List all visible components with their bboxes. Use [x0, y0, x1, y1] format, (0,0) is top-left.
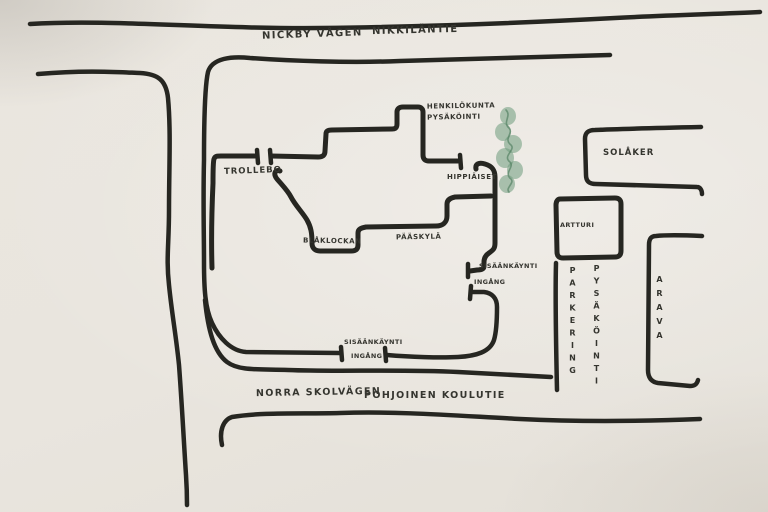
solaker-label: SOLÅKER — [603, 148, 654, 158]
trollebo-label: TROLLEBO — [224, 165, 282, 177]
hippiaiset-label: HIPPIÄISET — [447, 173, 497, 181]
parkering-label: PARKERING — [568, 266, 577, 379]
tree-icon — [495, 107, 523, 193]
staff-parking-line2: PYSÄKÖINTI — [427, 111, 496, 123]
hand-drawn-campus-map: NICKBY VÅGEN NIKKILÄNTIE NORRA SKOLVÄGEN… — [0, 0, 768, 512]
bottom-road-finnish-label: POHJOINEN KOULUTIE — [364, 390, 506, 401]
bottom-entrance-right-tick — [385, 348, 386, 361]
pysakointi-label: PYSÄKÖINTI — [592, 264, 601, 389]
blaklockan-label: BLÅKLOCKAN — [303, 236, 362, 245]
bottom-road-swedish-label: NORRA SKOLVÄGEN — [256, 386, 381, 399]
arava-label: ARAVA — [655, 275, 664, 345]
bottom-entrance-label-fi: SISÄÄNKÄYNTI — [344, 338, 403, 346]
solaker-outline — [585, 127, 702, 194]
boundary-entrance-tick — [470, 286, 471, 299]
right-entrance-label-fi: SISÄÄNKÄYNTI — [479, 262, 538, 270]
bottom-entrance-left-tick — [341, 347, 342, 360]
right-entrance-label-sv: INGÅNG — [474, 278, 505, 286]
artturi-label: ARTTURI — [560, 221, 594, 229]
left-road-line — [38, 72, 187, 505]
map-drawing — [0, 0, 768, 512]
bottom-entrance-label-sv: INGÅNG — [351, 352, 382, 360]
campus-boundary-line-right — [387, 292, 497, 357]
paaskyla-label: PÄÄSKYLÄ — [396, 233, 442, 242]
bottom-road-lower-line — [221, 413, 700, 445]
campus-boundary-line — [204, 55, 610, 353]
parking-strip-line — [556, 263, 557, 390]
hippiaiset-entrance-tick — [460, 155, 461, 168]
staff-parking-line1: HENKILÖKUNTA — [427, 100, 496, 112]
top-road-finnish-label: NIKKILÄNTIE — [372, 24, 459, 37]
staff-parking-label: HENKILÖKUNTA PYSÄKÖINTI — [427, 100, 496, 123]
trollebo-entrance-left-tick — [257, 150, 258, 163]
